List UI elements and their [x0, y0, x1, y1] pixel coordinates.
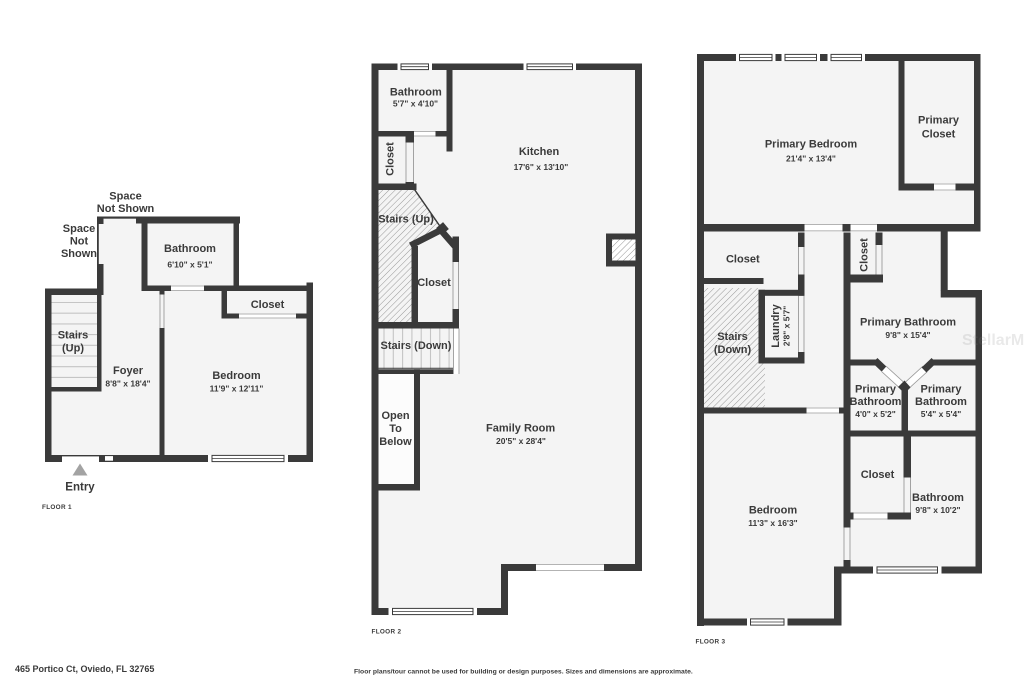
svg-text:Closet: Closet	[385, 142, 397, 176]
svg-text:Primary: Primary	[921, 384, 963, 396]
svg-text:Closet: Closet	[922, 129, 956, 141]
svg-text:5'7" x 4'10": 5'7" x 4'10"	[393, 99, 438, 109]
svg-text:Closet: Closet	[417, 277, 451, 289]
svg-text:9'8" x 10'2": 9'8" x 10'2"	[915, 505, 960, 515]
svg-text:Stairs: Stairs	[717, 331, 748, 343]
svg-text:Closet: Closet	[861, 469, 895, 481]
svg-text:8'8" x 18'4": 8'8" x 18'4"	[105, 379, 150, 389]
svg-text:StellarMLS: StellarMLS	[962, 332, 1024, 349]
svg-text:Laundry: Laundry	[770, 303, 782, 347]
svg-text:Closet: Closet	[251, 299, 285, 311]
svg-text:Bedroom: Bedroom	[212, 370, 261, 382]
svg-text:(Up): (Up)	[62, 343, 84, 355]
svg-text:2'8" x 5'7": 2'8" x 5'7"	[782, 306, 792, 346]
svg-text:4'0" x 5'2": 4'0" x 5'2"	[855, 409, 895, 419]
svg-text:465 Portico Ct, Oviedo, FL 327: 465 Portico Ct, Oviedo, FL 32765	[15, 664, 154, 674]
svg-text:(Down): (Down)	[714, 344, 752, 356]
svg-text:17'6" x 13'10": 17'6" x 13'10"	[514, 162, 569, 172]
svg-text:9'8" x 15'4": 9'8" x 15'4"	[885, 330, 930, 340]
svg-text:FLOOR 3: FLOOR 3	[696, 639, 726, 646]
svg-text:11'3" x 16'3": 11'3" x 16'3"	[748, 518, 797, 528]
svg-text:Family Room: Family Room	[486, 423, 555, 435]
svg-text:FLOOR 2: FLOOR 2	[372, 629, 402, 636]
svg-text:21'4" x 13'4": 21'4" x 13'4"	[786, 154, 836, 164]
svg-text:Shown: Shown	[61, 248, 97, 260]
svg-text:Closet: Closet	[726, 253, 760, 265]
svg-text:Bathroom: Bathroom	[390, 87, 442, 99]
svg-text:Bedroom: Bedroom	[749, 505, 798, 517]
svg-text:Bathroom: Bathroom	[915, 396, 967, 408]
svg-text:Not: Not	[70, 236, 89, 248]
svg-text:Primary: Primary	[918, 115, 960, 127]
svg-text:Stairs (Up): Stairs (Up)	[378, 214, 434, 226]
svg-text:Below: Below	[379, 436, 412, 448]
svg-text:Bathroom: Bathroom	[912, 492, 964, 504]
svg-text:6'10" x 5'1": 6'10" x 5'1"	[167, 260, 212, 270]
svg-text:Bathroom: Bathroom	[164, 243, 216, 255]
svg-text:Foyer: Foyer	[113, 365, 144, 377]
svg-text:5'4" x 5'4": 5'4" x 5'4"	[921, 409, 961, 419]
svg-text:To: To	[389, 423, 402, 435]
svg-text:11'9" x 12'11": 11'9" x 12'11"	[210, 384, 264, 394]
svg-text:Space: Space	[63, 223, 95, 235]
svg-text:Floor plans/tour cannot be use: Floor plans/tour cannot be used for buil…	[354, 669, 693, 676]
svg-text:Bathroom: Bathroom	[850, 396, 902, 408]
svg-text:Entry: Entry	[65, 482, 95, 494]
svg-text:Stairs (Down): Stairs (Down)	[381, 340, 452, 352]
svg-text:20'5" x 28'4": 20'5" x 28'4"	[496, 436, 546, 446]
svg-text:Primary Bedroom: Primary Bedroom	[765, 139, 858, 151]
svg-text:Space: Space	[109, 191, 141, 203]
svg-text:Not Shown: Not Shown	[97, 203, 155, 215]
svg-text:Stairs: Stairs	[58, 330, 89, 342]
svg-text:Open: Open	[381, 410, 409, 422]
svg-text:Primary: Primary	[855, 384, 897, 396]
svg-text:Closet: Closet	[859, 238, 871, 272]
svg-text:FLOOR 1: FLOOR 1	[42, 504, 72, 511]
svg-text:Kitchen: Kitchen	[519, 146, 560, 158]
svg-text:Primary Bathroom: Primary Bathroom	[860, 317, 956, 329]
